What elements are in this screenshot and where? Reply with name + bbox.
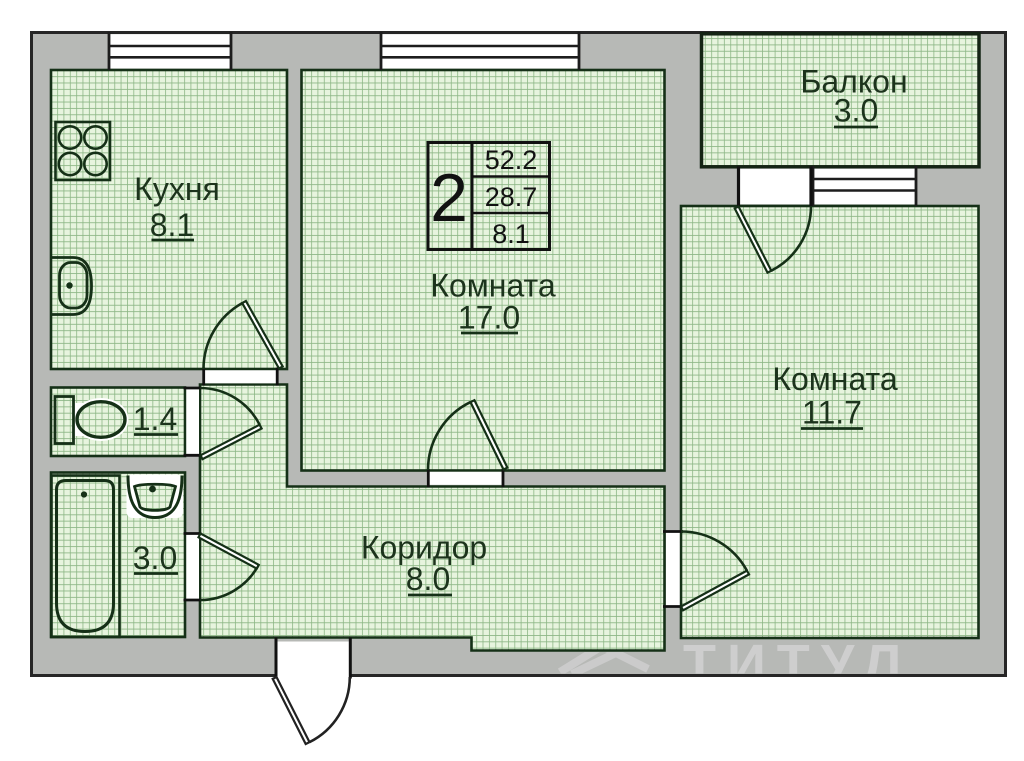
svg-text:11.7: 11.7 bbox=[802, 395, 862, 431]
svg-text:1.4: 1.4 bbox=[133, 401, 177, 437]
svg-text:Комната: Комната bbox=[430, 268, 556, 304]
svg-text:3.0: 3.0 bbox=[133, 540, 177, 576]
svg-text:17.0: 17.0 bbox=[458, 300, 520, 336]
svg-text:2: 2 bbox=[430, 160, 468, 236]
svg-text:Кухня: Кухня bbox=[134, 171, 220, 207]
svg-text:Комната: Комната bbox=[772, 361, 898, 397]
svg-text:28.7: 28.7 bbox=[485, 182, 538, 212]
svg-text:8.0: 8.0 bbox=[406, 561, 450, 597]
svg-text:8.1: 8.1 bbox=[492, 219, 530, 249]
svg-text:3.0: 3.0 bbox=[834, 93, 878, 129]
svg-text:8.1: 8.1 bbox=[150, 207, 194, 243]
svg-text:52.2: 52.2 bbox=[485, 145, 538, 175]
